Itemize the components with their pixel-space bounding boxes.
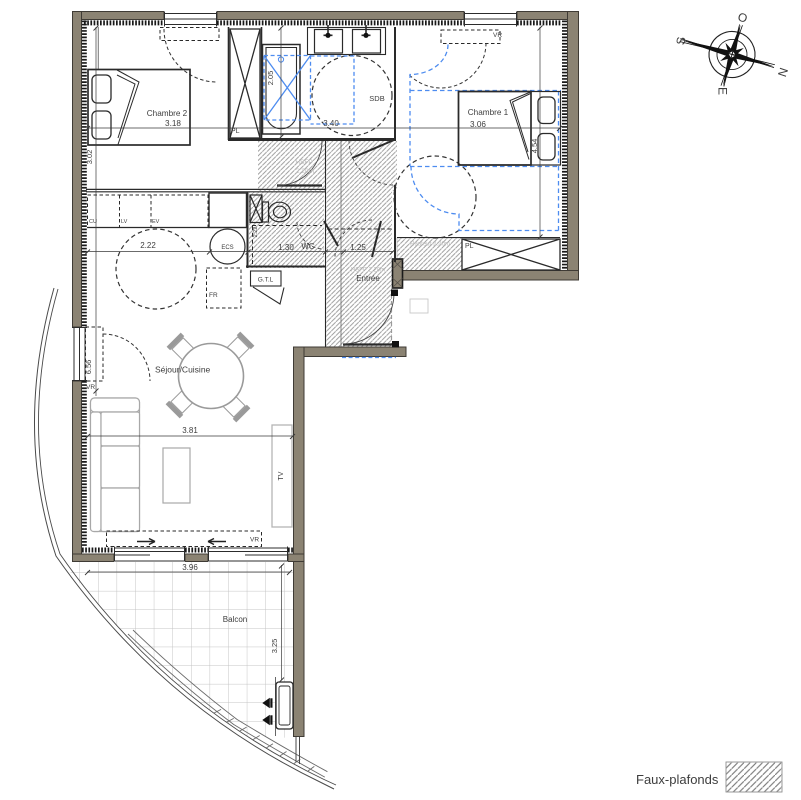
svg-text:2.22: 2.22 xyxy=(140,241,156,250)
svg-text:6.56: 6.56 xyxy=(84,360,93,375)
svg-text:SDB: SDB xyxy=(369,94,384,103)
svg-text:1.30: 1.30 xyxy=(278,243,294,252)
svg-text:3.25: 3.25 xyxy=(270,639,279,654)
svg-text:G.T.L: G.T.L xyxy=(258,277,274,284)
svg-text:Balcon: Balcon xyxy=(223,615,247,624)
svg-text:3.02: 3.02 xyxy=(85,150,94,165)
svg-text:Entrée: Entrée xyxy=(356,274,380,283)
svg-text:FR: FR xyxy=(209,292,218,299)
svg-text:3.06: 3.06 xyxy=(470,120,486,129)
svg-text:HSFP: HSFP xyxy=(295,159,312,166)
svg-text:PL: PL xyxy=(465,243,474,250)
svg-text:HSFP 2.20m: HSFP 2.20m xyxy=(351,268,385,274)
svg-text:2.22: 2.22 xyxy=(253,227,259,238)
svg-text:LV: LV xyxy=(121,219,128,225)
svg-text:WC: WC xyxy=(301,242,315,251)
svg-text:TV: TV xyxy=(278,471,285,480)
svg-text:Séjour/Cuisine: Séjour/Cuisine xyxy=(155,365,211,375)
svg-text:S: S xyxy=(673,36,688,46)
svg-text:3.18: 3.18 xyxy=(165,119,181,128)
svg-text:ECS: ECS xyxy=(221,245,233,251)
svg-text:VR: VR xyxy=(493,32,502,39)
svg-text:Chambre 1: Chambre 1 xyxy=(468,108,509,117)
svg-text:2.20m: 2.20m xyxy=(296,168,314,175)
svg-text:O: O xyxy=(736,10,749,26)
svg-text:VR: VR xyxy=(86,384,95,391)
svg-text:3.40: 3.40 xyxy=(323,119,339,128)
svg-text:CU: CU xyxy=(89,219,97,225)
svg-text:E: E xyxy=(716,87,730,95)
svg-text:EV: EV xyxy=(152,219,160,225)
svg-text:3.81: 3.81 xyxy=(182,426,198,435)
svg-text:4.54: 4.54 xyxy=(530,139,539,154)
svg-text:Chambre 2: Chambre 2 xyxy=(147,109,188,118)
svg-text:1.25: 1.25 xyxy=(350,243,366,252)
svg-text:3.96: 3.96 xyxy=(182,563,198,572)
svg-text:N: N xyxy=(775,66,791,79)
svg-text:Hauteur 2.20m: Hauteur 2.20m xyxy=(410,242,450,248)
svg-text:2.05: 2.05 xyxy=(266,71,275,86)
svg-text:PL: PL xyxy=(231,128,240,135)
svg-text:Faux-plafonds: Faux-plafonds xyxy=(636,772,719,787)
svg-text:VR: VR xyxy=(250,537,259,544)
